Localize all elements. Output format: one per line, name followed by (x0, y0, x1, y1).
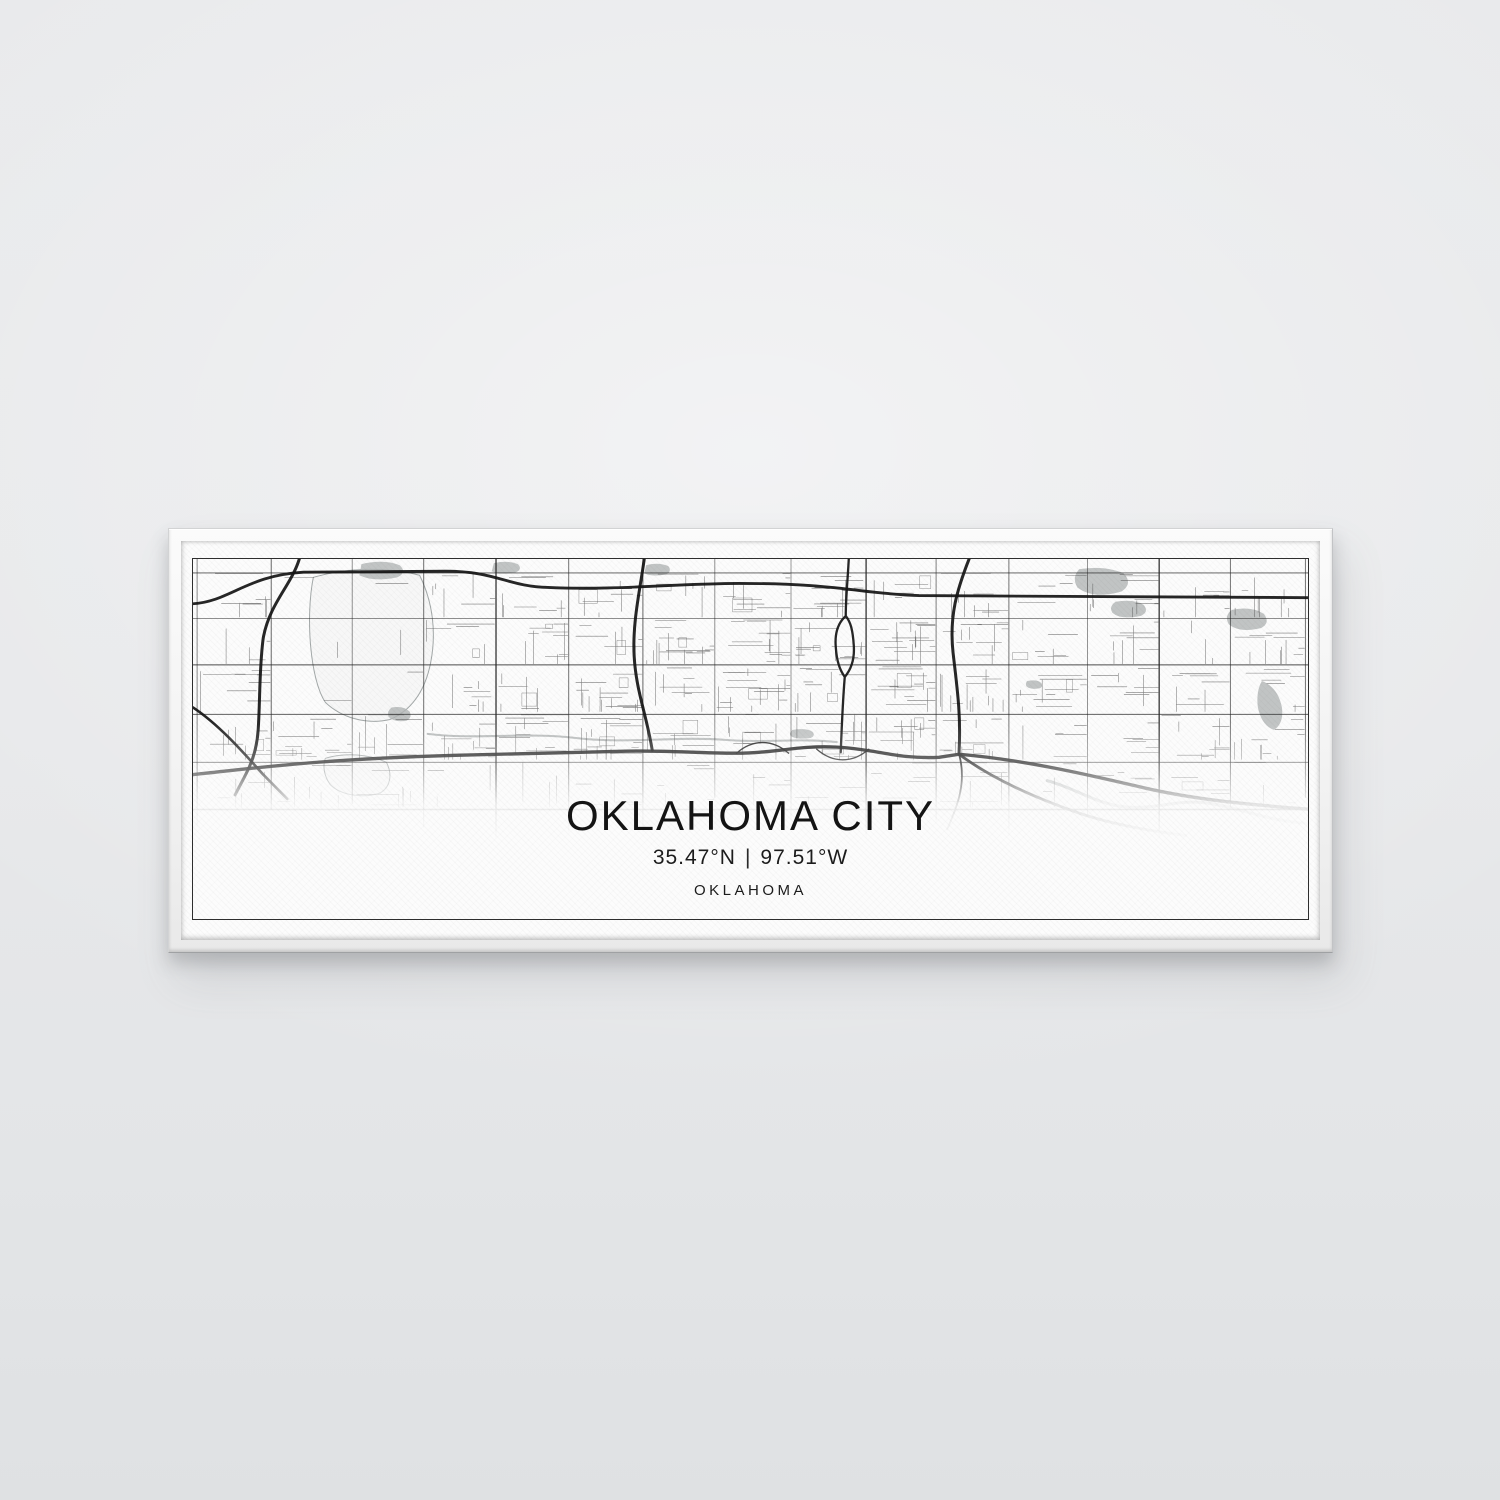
coordinates-line: 35.47°N|97.51°W (193, 846, 1308, 870)
city-title: OKLAHOMA CITY (193, 795, 1308, 837)
state-label: OKLAHOMA (193, 882, 1308, 899)
map-print-area: OKLAHOMA CITY 35.47°N|97.51°W OKLAHOMA (192, 558, 1309, 920)
longitude-label: 97.51°W (760, 846, 848, 869)
latitude-label: 35.47°N (653, 846, 736, 869)
coordinate-separator: | (745, 846, 751, 869)
artwork-frame: OKLAHOMA CITY 35.47°N|97.51°W OKLAHOMA (168, 528, 1333, 953)
canvas-print: OKLAHOMA CITY 35.47°N|97.51°W OKLAHOMA (181, 541, 1320, 940)
map-caption-block: OKLAHOMA CITY 35.47°N|97.51°W OKLAHOMA (193, 795, 1308, 899)
